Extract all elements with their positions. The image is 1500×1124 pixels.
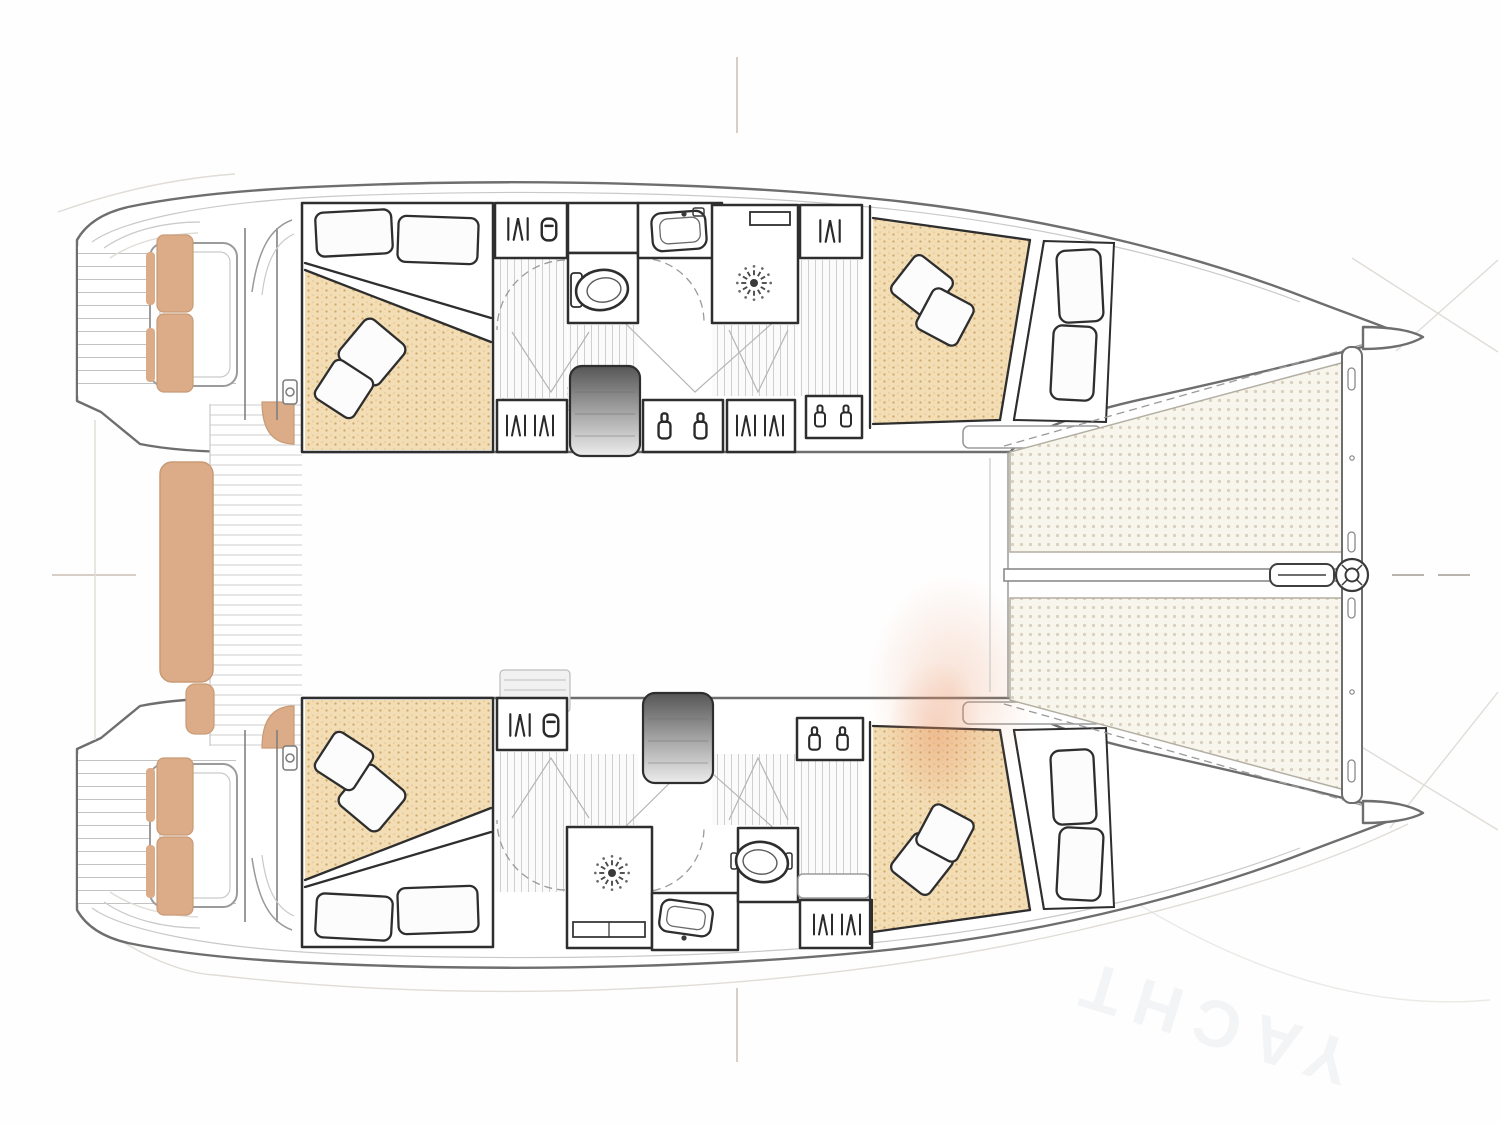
- starboard-locker-bottles: [797, 718, 863, 760]
- stern-seat-cushion: [157, 314, 193, 392]
- seat-bolster: [146, 768, 155, 822]
- winch-icon: [283, 746, 297, 770]
- watermark-color-blob: [887, 660, 983, 810]
- wardrobe-port-fwd: [800, 205, 862, 258]
- cockpit-corner-cushion: [186, 684, 214, 734]
- bed-pillow: [315, 209, 393, 257]
- corridor-floor: [800, 260, 862, 396]
- room-starboard-aft-cabin: Aft double cabin (starboard hull): [302, 698, 493, 947]
- bed-pillow: [1050, 325, 1097, 401]
- room-port-aft-cabin: Aft double cabin (port hull): [302, 203, 493, 452]
- bow-tip-port: [1363, 327, 1423, 349]
- shower-bench: [750, 212, 790, 225]
- corridor-floor: [495, 258, 567, 398]
- stern-seat-cushion: [157, 235, 193, 312]
- starboard-stairs: [643, 693, 713, 783]
- furler-icon: [1336, 559, 1368, 591]
- corridor-floor: [495, 752, 567, 892]
- bed-pillow: [1056, 249, 1104, 323]
- stairs-icon: [570, 366, 640, 456]
- floor-plan-stage: YACHT Saloon / bridgedeck Aft cockpit wi…: [0, 0, 1500, 1124]
- bed-pillow: [397, 886, 479, 935]
- seat-bolster: [146, 252, 155, 305]
- corridor-floor: [568, 754, 638, 825]
- stern-seat-cushion: [157, 758, 193, 835]
- winch-icon: [283, 380, 297, 404]
- stairs-icon: [643, 693, 713, 783]
- wardrobe-port-aft: [495, 203, 567, 258]
- wardrobe-starboard-aft: [497, 698, 567, 750]
- cockpit-bench-cushion: [160, 462, 213, 682]
- room-port-forward-cabin: Forward double cabin (port hull): [870, 206, 1114, 448]
- watermark-text: YACHT: [1059, 944, 1359, 1100]
- bed-pillow: [1050, 749, 1097, 825]
- seat-bolster: [146, 845, 155, 898]
- bed-pillow: [1056, 827, 1104, 901]
- starboard-locker-row-outer: [798, 874, 872, 948]
- shelf: [798, 874, 870, 898]
- bed-pillow: [315, 893, 393, 941]
- cockpit-deck-planks: [210, 404, 302, 746]
- corridor-floor: [800, 754, 862, 890]
- bed-pillow: [397, 216, 479, 265]
- bow-tip-starboard: [1363, 801, 1423, 823]
- room-port-shower: Shower room (port hull): [712, 205, 798, 323]
- stern-seat-cushion: [157, 837, 193, 915]
- catamaran-floor-plan: YACHT Saloon / bridgedeck Aft cockpit wi…: [0, 0, 1500, 1124]
- seat-bolster: [146, 328, 155, 382]
- room-starboard-shower: Shower room (starboard hull): [567, 827, 652, 948]
